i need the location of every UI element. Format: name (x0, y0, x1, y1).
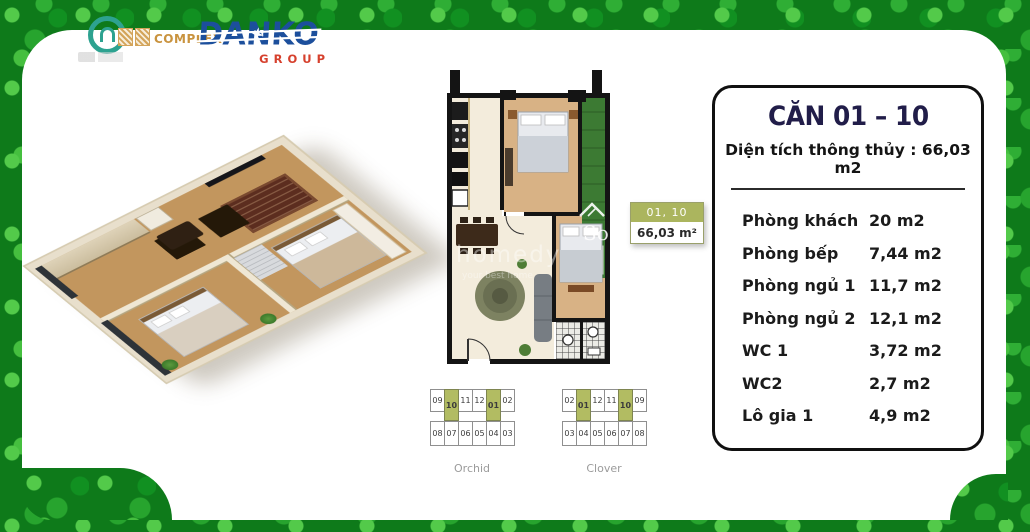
room-label: WC2 (742, 374, 869, 393)
room-row: Phòng bếp7,44 m2 (715, 244, 981, 263)
keyplan-cell: 02 (500, 389, 515, 412)
room-area: 3,72 m2 (869, 341, 963, 360)
danko-group-text: GROUP (198, 52, 330, 66)
keyplan-cell: 01 (486, 389, 501, 421)
dining-table (156, 221, 205, 251)
apartment-3d-model (25, 137, 425, 383)
room-area: 11,7 m2 (869, 276, 963, 295)
living-rug (220, 173, 318, 233)
ornament-icon (135, 28, 150, 46)
keyplan-cell: 03 (562, 421, 577, 446)
room-row: WC 13,72 m2 (715, 341, 981, 360)
keyplan-cell: 12 (472, 389, 487, 412)
room-area: 4,9 m2 (869, 406, 963, 425)
panel-title: CĂN 01 – 10 (715, 101, 981, 132)
keyplan-cell: 09 (632, 389, 647, 412)
tv-unit (205, 155, 266, 187)
total-area-label: Diện tích thông thủy : 66,03 m2 (715, 141, 981, 177)
keyplan-cell: 08 (632, 421, 647, 446)
room-row: Phòng ngủ 212,1 m2 (715, 309, 981, 328)
keyplan-cell: 01 (576, 389, 591, 421)
keyplan-cell: 10 (444, 389, 459, 421)
divider (731, 188, 965, 190)
keyplan-cell: 04 (576, 421, 591, 446)
room-area: 2,7 m2 (869, 374, 963, 393)
room-label: Phòng khách (742, 211, 869, 230)
developer-logo: DANKO GROUP (198, 20, 330, 66)
unit-badge-units: 01, 10 (631, 203, 703, 222)
unit-badge: 01, 10 66,03 m² (630, 202, 704, 244)
keyplan-orchid: 091011120102080706050403Orchid (424, 389, 520, 475)
watermark-tagline: your best home (462, 271, 533, 281)
keyplan-cell: 08 (430, 421, 445, 446)
room-row: WC22,7 m2 (715, 374, 981, 393)
keyplan-cell: 03 (500, 421, 515, 446)
keyplan-cell: 12 (590, 389, 605, 412)
keyplan-cell: 11 (458, 389, 473, 412)
floorplan-2d: So homedy your best home (442, 64, 616, 372)
emblem-caption (78, 52, 134, 62)
room-area: 12,1 m2 (869, 309, 963, 328)
room-row: Phòng ngủ 111,7 m2 (715, 276, 981, 295)
keyplan-label: Orchid (424, 462, 520, 475)
watermark-text: homedy (456, 242, 561, 268)
room-label: WC 1 (742, 341, 869, 360)
keyplans: 091011120102080706050403Orchid0201121110… (424, 389, 652, 475)
bed-1 (138, 287, 249, 357)
keyplan-cell: 07 (618, 421, 633, 446)
plant (257, 311, 280, 326)
keyplan-cell: 11 (604, 389, 619, 412)
svg-text:So: So (583, 221, 609, 245)
keyplan-cell: 10 (618, 389, 633, 421)
keyplan-clover: 020112111009030405060708Clover (556, 389, 652, 475)
room-label: Phòng ngủ 2 (742, 309, 869, 328)
keyplan-cell: 05 (472, 421, 487, 446)
room-area: 20 m2 (869, 211, 963, 230)
room-row: Lô gia 14,9 m2 (715, 406, 981, 425)
room-row: Phòng khách20 m2 (715, 211, 981, 230)
room-label: Lô gia 1 (742, 406, 869, 425)
kitchen-cabinets (38, 219, 150, 281)
ornament-icon (118, 28, 133, 46)
unit-badge-area: 66,03 m² (631, 222, 703, 243)
info-panel: CĂN 01 – 10 Diện tích thông thủy : 66,03… (712, 85, 984, 451)
keyplan-cell: 09 (430, 389, 445, 412)
floorplan-3d (20, 92, 420, 412)
keyplan-cell: 04 (486, 421, 501, 446)
keyplan-label: Clover (556, 462, 652, 475)
room-label: Phòng bếp (742, 244, 869, 263)
keyplan-cell: 06 (604, 421, 619, 446)
keyplan-cell: 06 (458, 421, 473, 446)
keyplan-cell: 05 (590, 421, 605, 446)
room-area: 7,44 m2 (869, 244, 963, 263)
keyplan-cell: 02 (562, 389, 577, 412)
room-list: Phòng khách20 m2Phòng bếp7,44 m2Phòng ng… (715, 211, 981, 425)
room-label: Phòng ngủ 1 (742, 276, 869, 295)
keyplan-cell: 07 (444, 421, 459, 446)
